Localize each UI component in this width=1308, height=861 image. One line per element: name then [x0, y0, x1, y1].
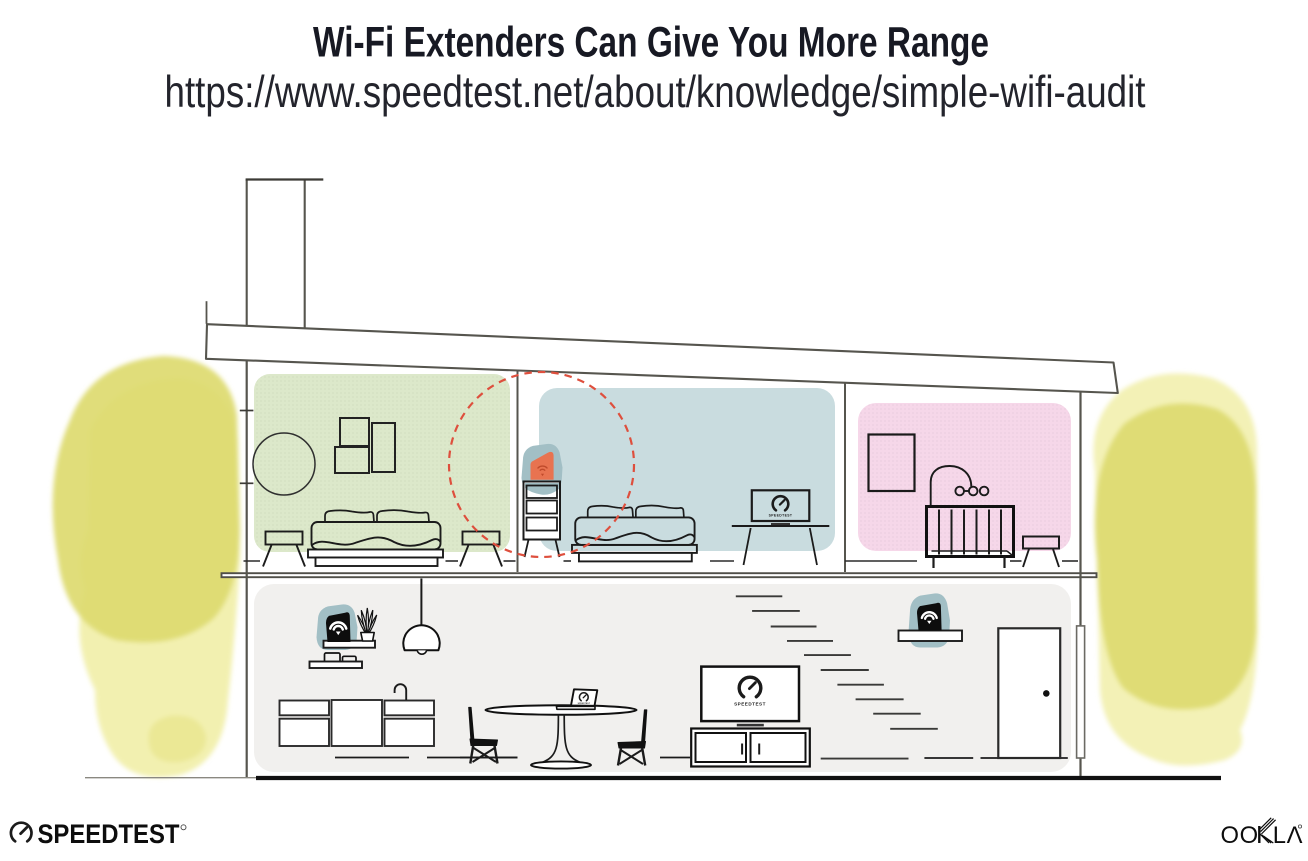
svg-text:SPEEDTEST: SPEEDTEST: [578, 703, 591, 705]
svg-text:SPEEDTEST: SPEEDTEST: [769, 514, 793, 518]
svg-text:https://www.speedtest.net/abou: https://www.speedtest.net/about/knowledg…: [165, 68, 1147, 117]
svg-text:OO: OO: [1221, 822, 1259, 849]
svg-text:SPEEDTEST: SPEEDTEST: [38, 819, 180, 849]
svg-text:SPEEDTEST: SPEEDTEST: [734, 702, 766, 707]
svg-text:Wi-Fi Extenders Can Give You M: Wi-Fi Extenders Can Give You More Range: [313, 20, 989, 67]
